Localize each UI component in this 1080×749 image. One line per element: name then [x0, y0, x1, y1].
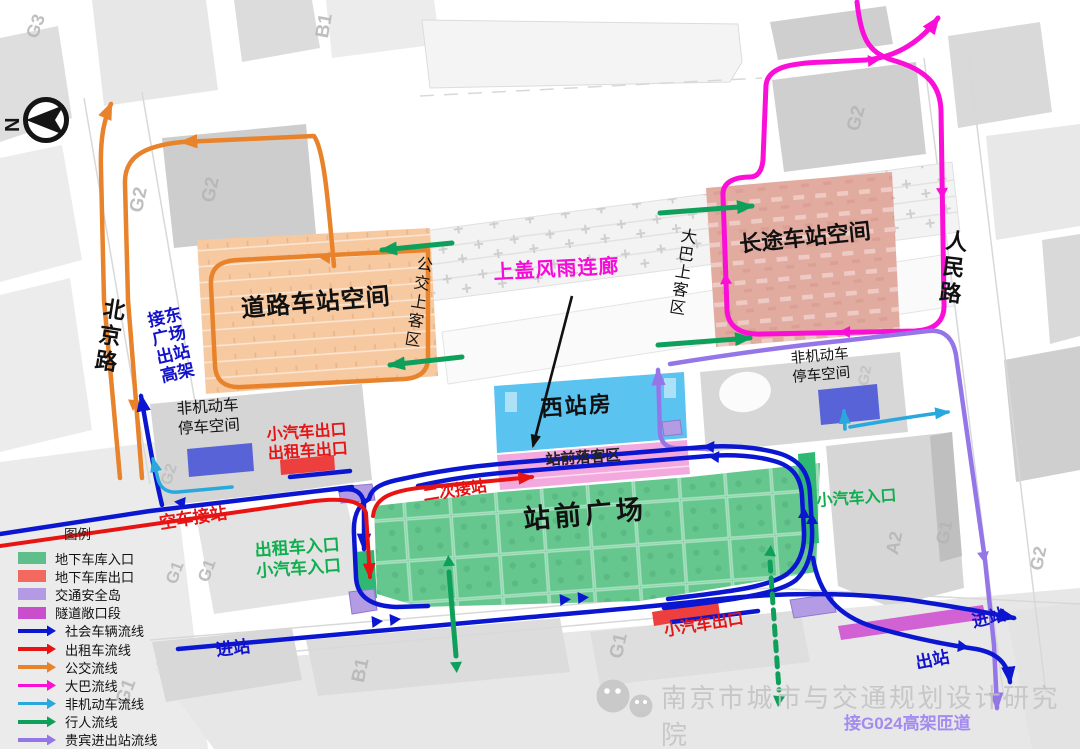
- legend-item-pedestrian-flow: 行人流线: [10, 713, 168, 731]
- legend-item-bus-flow: 公交流线: [10, 658, 168, 676]
- legend-item-taxi-flow: 出租车流线: [10, 640, 168, 658]
- nonmotor-parking-right-label: 非机动车停车空间: [790, 345, 855, 388]
- garage-entry-swatch: [18, 552, 46, 564]
- north-label: N: [2, 118, 25, 132]
- nonmotor-parking-rect-left: [187, 443, 254, 477]
- vip-flow-arrow: [18, 738, 47, 742]
- watermark-text: 南京市城市与交通规划设计研究院: [661, 678, 1080, 749]
- zone-west-station-label: 西站房: [540, 391, 614, 421]
- legend-item-garage-exit: 地下车库出口: [10, 567, 168, 585]
- nonmotor-parking-left-label: 非机动车停车空间: [176, 395, 245, 440]
- legend-item-bicycle-flow: 非机动车流线: [10, 695, 168, 713]
- legend-item-vip-flow: 贵宾进出站流线: [10, 731, 168, 749]
- pedestrian-flow-arrow: [18, 720, 47, 724]
- legend-item-car-flow: 社会车辆流线: [10, 622, 168, 640]
- car-taxi-exit-left-note: 小汽车出口 出租车出口: [266, 420, 348, 464]
- bicycle-flow-arrow: [18, 702, 47, 706]
- legend-item-garage-entry: 地下车库入口: [10, 549, 168, 567]
- safety-island-swatch: [18, 588, 46, 600]
- north-compass-icon: [26, 100, 67, 141]
- legend-item-safety-island: 交通安全岛: [10, 585, 168, 603]
- bus-flow-arrow: [18, 665, 47, 669]
- tunnel-swatch: [18, 607, 46, 619]
- taxi-flow-arrow: [18, 647, 47, 651]
- block-label-b1-top: B1: [312, 12, 338, 40]
- taxi-car-entrance-note: 出租车入口 小汽车入口: [254, 534, 342, 582]
- legend: 图例 地下车库入口 地下车库出口 交通安全岛 隧道敞口段 社会车辆流线 出租车流…: [10, 523, 168, 749]
- legend-item-tunnel: 隧道敞口段: [10, 604, 168, 622]
- legend-item-coach-flow: 大巴流线: [10, 676, 168, 694]
- nonmotor-parking-rect-right: [818, 384, 880, 425]
- garage-exit-swatch: [18, 570, 46, 582]
- coach-flow-arrow: [18, 684, 47, 688]
- legend-title: 图例: [64, 523, 168, 543]
- block-label-g2-r: G2: [855, 364, 875, 387]
- traffic-plan-canvas: N 北京路 人民路 接东广场出站高架 公交上客区 大巴上客区 上盖风雨连廊 道路…: [0, 0, 1080, 749]
- enter-station-west-note: 进站: [215, 637, 251, 661]
- car-flow-arrow: [18, 629, 47, 633]
